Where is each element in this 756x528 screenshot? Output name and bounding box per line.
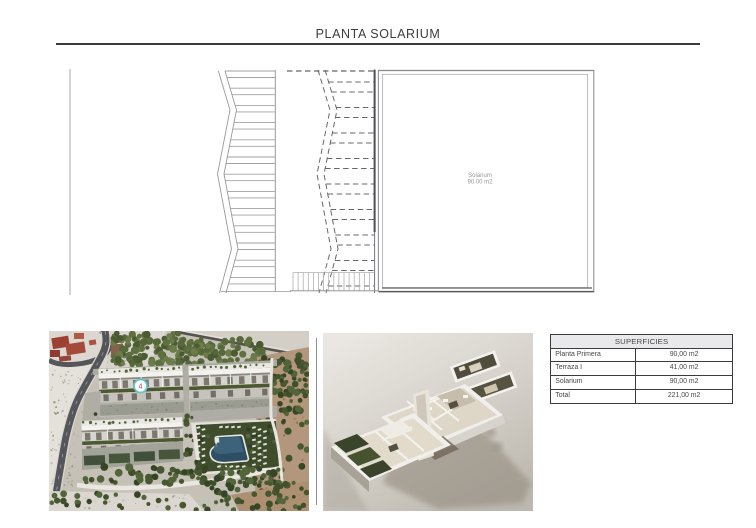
svg-text:90.00 m2: 90.00 m2 (467, 180, 493, 186)
svg-text:4: 4 (139, 384, 143, 391)
svg-text:Solarium: Solarium (468, 173, 492, 179)
